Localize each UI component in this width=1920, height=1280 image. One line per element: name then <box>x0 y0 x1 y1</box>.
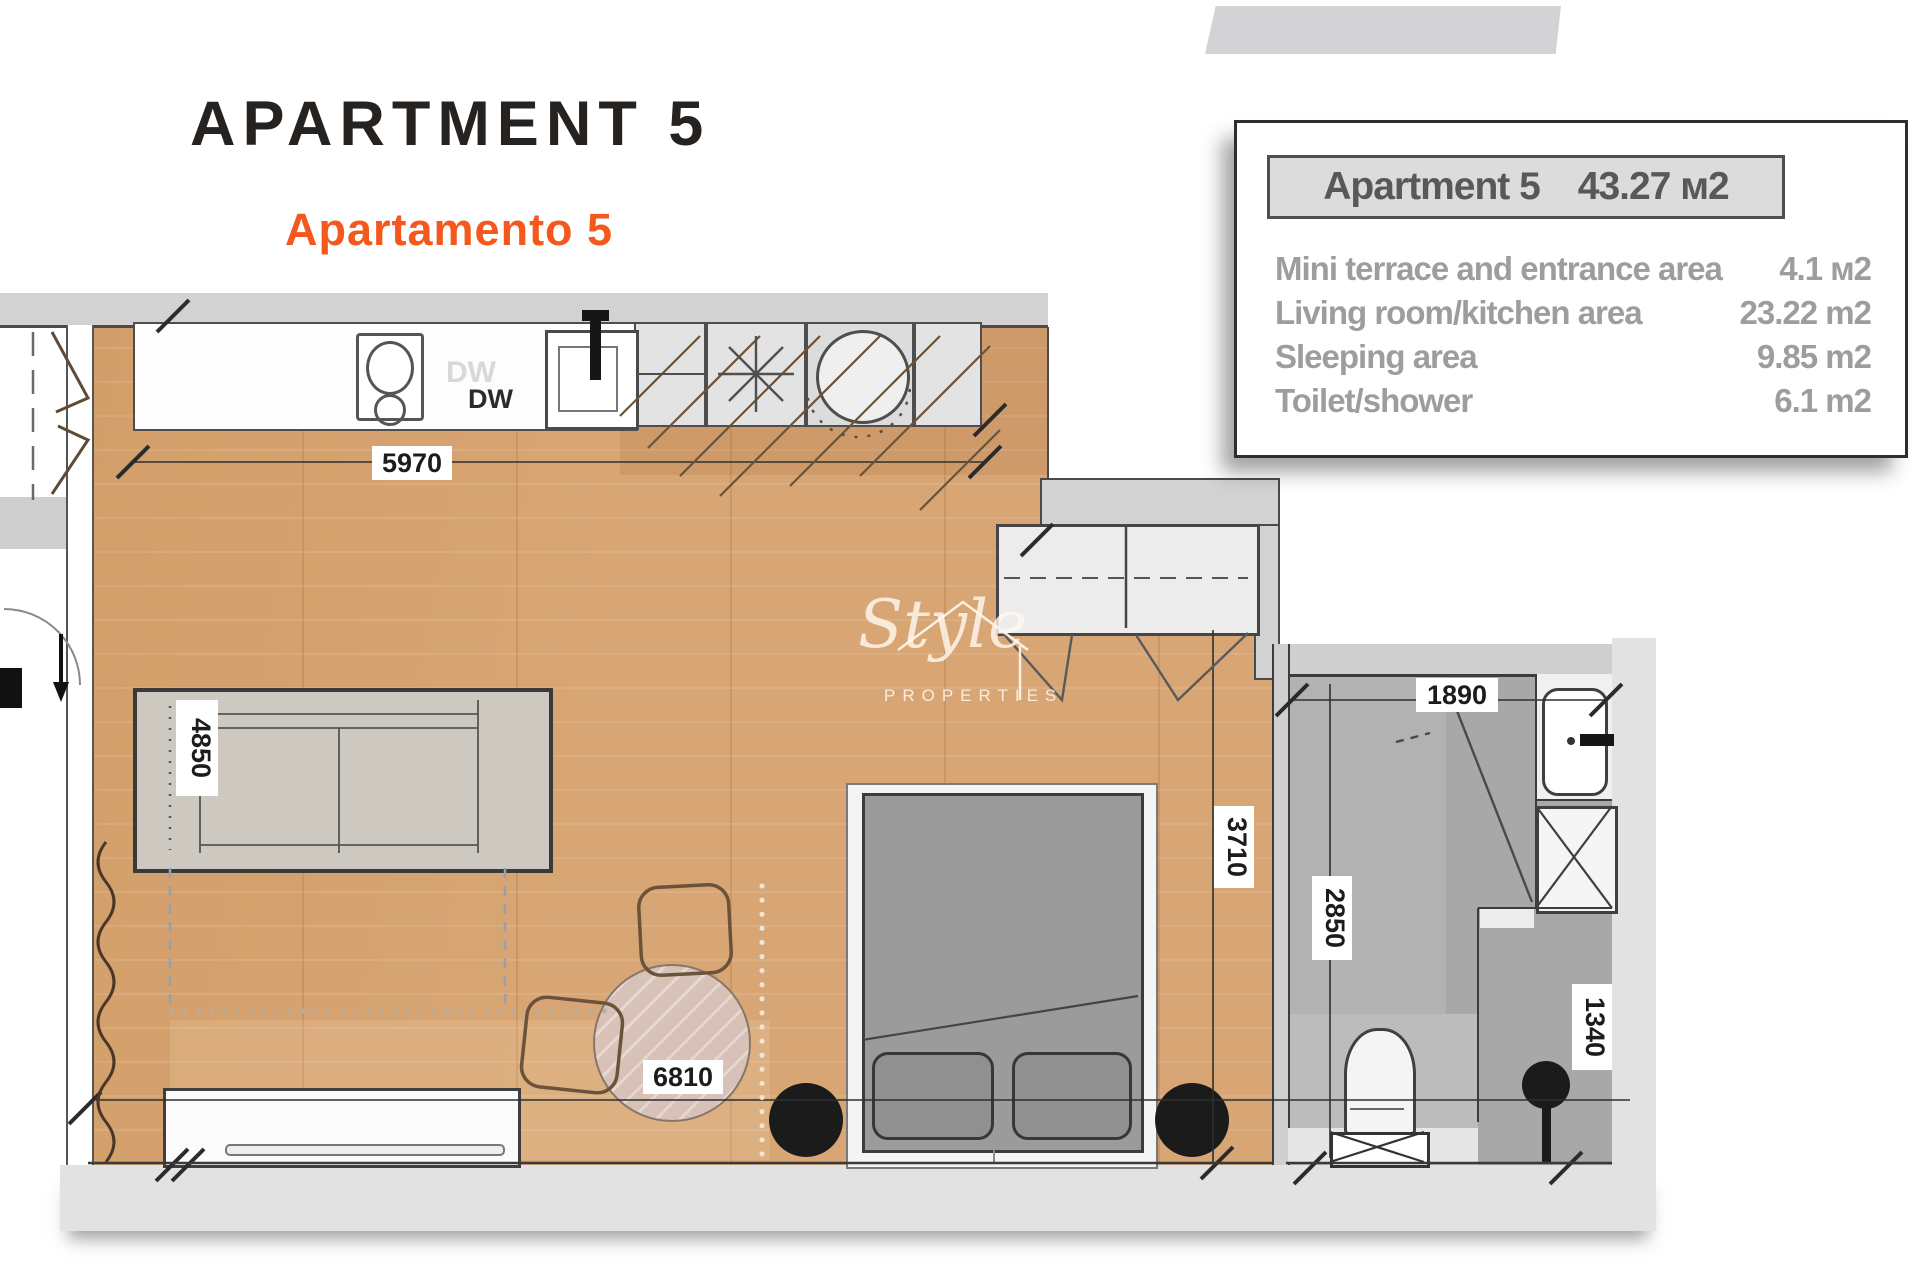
area-row-label: Toilet/shower <box>1275 382 1472 420</box>
toilet-seat-line <box>1350 1108 1404 1110</box>
page-title: APARTMENT 5 <box>190 88 710 160</box>
watermark-script: Style <box>858 586 1027 663</box>
apartment-name: Apartment 5 <box>1323 165 1540 209</box>
bathroom-left-wall <box>1272 644 1290 1165</box>
area-row: Living room/kitchen area 23.22 m2 <box>1275 291 1871 335</box>
structural-column <box>769 1083 843 1157</box>
area-row: Sleeping area 9.85 m2 <box>1275 335 1871 379</box>
entrance-wall <box>1040 478 1280 528</box>
bottom-terrace-band <box>60 1165 1656 1231</box>
appliance-cooker <box>706 322 806 427</box>
dim-dining-zone: 6810 <box>643 1060 723 1094</box>
left-wall <box>66 325 94 1165</box>
area-row: Mini terrace and entrance area 4.1 м2 <box>1275 247 1871 291</box>
area-row: Toilet/shower 6.1 m2 <box>1275 379 1871 423</box>
area-row-label: Living room/kitchen area <box>1275 294 1642 332</box>
bathroom-sink-icon <box>1542 688 1608 796</box>
dining-table <box>593 964 751 1122</box>
building-outline-fragment <box>1205 6 1561 54</box>
structural-column <box>1155 1083 1229 1157</box>
right-outer-wall-band <box>1612 638 1656 1231</box>
kitchen-appliance-block <box>634 322 982 427</box>
dim-sleeping-width: 3710 <box>1214 806 1254 888</box>
dim-sofa-length: 4850 <box>176 700 218 796</box>
area-summary-rows: Mini terrace and entrance area 4.1 м2 Li… <box>1275 247 1871 423</box>
appliance-cabinet <box>914 322 982 427</box>
washer-drum-icon <box>816 330 910 424</box>
area-row-label: Mini terrace and entrance area <box>1275 250 1722 288</box>
top-wall-left <box>0 293 88 328</box>
kitchen-sink-basin <box>558 346 618 412</box>
area-row-label: Sleeping area <box>1275 338 1477 376</box>
area-summary-panel: Apartment 5 43.27 м2 Mini terrace and en… <box>1234 120 1908 458</box>
area-row-value: 23.22 m2 <box>1740 294 1871 332</box>
apartment-total-area: 43.27 м2 <box>1578 165 1729 209</box>
sideboard-handle <box>225 1144 505 1156</box>
dim-bathroom-depth: 2850 <box>1312 876 1352 960</box>
watermark-caption: PROPERTIES <box>884 686 1063 706</box>
pipe-column <box>1522 1061 1570 1109</box>
toilet-icon <box>1344 1028 1416 1136</box>
page-subtitle: Apartamento 5 <box>285 204 613 256</box>
dim-kitchen-width: 5970 <box>372 446 452 480</box>
bathroom-threshold <box>1480 908 1534 928</box>
wardrobe <box>996 524 1260 636</box>
dishwasher-label: DW <box>468 384 513 415</box>
area-row-value: 9.85 m2 <box>1757 338 1871 376</box>
shower-tray-icon <box>1536 806 1618 914</box>
sideboard <box>163 1088 521 1168</box>
area-row-value: 6.1 m2 <box>1774 382 1871 420</box>
left-wall-segment <box>0 497 66 549</box>
area-summary-header: Apartment 5 43.27 м2 <box>1267 155 1785 219</box>
bathroom-top-wall <box>1286 644 1612 677</box>
hob-burner-small-icon <box>374 394 406 426</box>
corridor-marker <box>0 668 22 708</box>
dim-toilet-zone-width: 1340 <box>1572 984 1612 1070</box>
radiator-icon <box>1330 1132 1430 1168</box>
bed-pillow <box>872 1052 994 1140</box>
dim-bathroom-width: 1890 <box>1416 678 1498 712</box>
area-row-value: 4.1 м2 <box>1779 250 1871 288</box>
hob-burner-large-icon <box>366 341 414 395</box>
appliance-cabinet <box>634 322 706 427</box>
bed-pillow <box>1012 1052 1132 1140</box>
